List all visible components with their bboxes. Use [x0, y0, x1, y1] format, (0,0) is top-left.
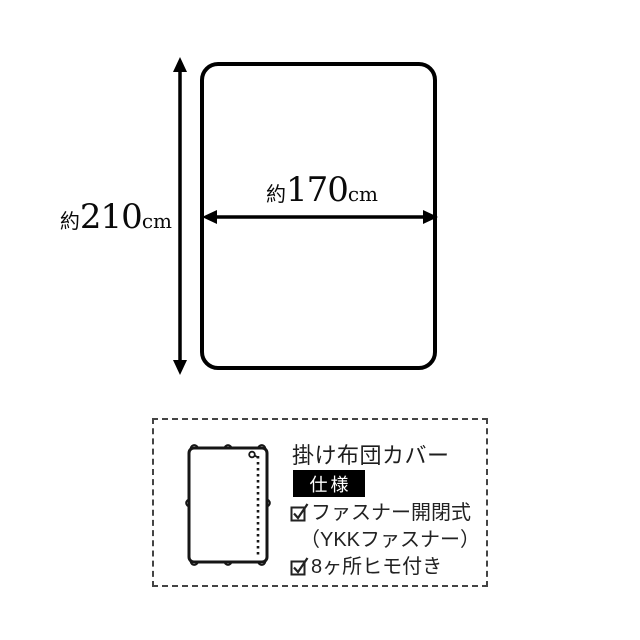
checked-checkbox-icon	[290, 502, 309, 522]
checked-checkbox-icon	[290, 556, 309, 576]
height-label: 約210cm	[30, 196, 172, 244]
width-value: 170	[286, 170, 348, 210]
feature-label: （YKKファスナー）	[300, 528, 480, 552]
height-value: 210	[80, 197, 142, 237]
width-approx-prefix: 約	[266, 182, 286, 206]
feature-item-ties: 8ヶ所ヒモ付き	[290, 555, 442, 579]
product-spec-image: 約210cm 約170cm 掛け布団カバ	[0, 0, 640, 640]
feature-label: 8ヶ所ヒモ付き	[311, 555, 442, 579]
feature-item-ykk-note: （YKKファスナー）	[300, 528, 480, 552]
height-unit: cm	[142, 209, 172, 233]
width-label: 約170cm	[208, 170, 436, 216]
width-unit: cm	[348, 182, 378, 206]
feature-item-zipper: ファスナー開閉式	[290, 501, 471, 525]
feature-label: ファスナー開閉式	[311, 501, 471, 525]
spec-badge: 仕様	[293, 470, 365, 497]
spec-title: 掛け布団カバー	[292, 438, 450, 470]
duvet-cover-schematic-icon	[168, 436, 280, 574]
height-approx-prefix: 約	[60, 209, 80, 233]
